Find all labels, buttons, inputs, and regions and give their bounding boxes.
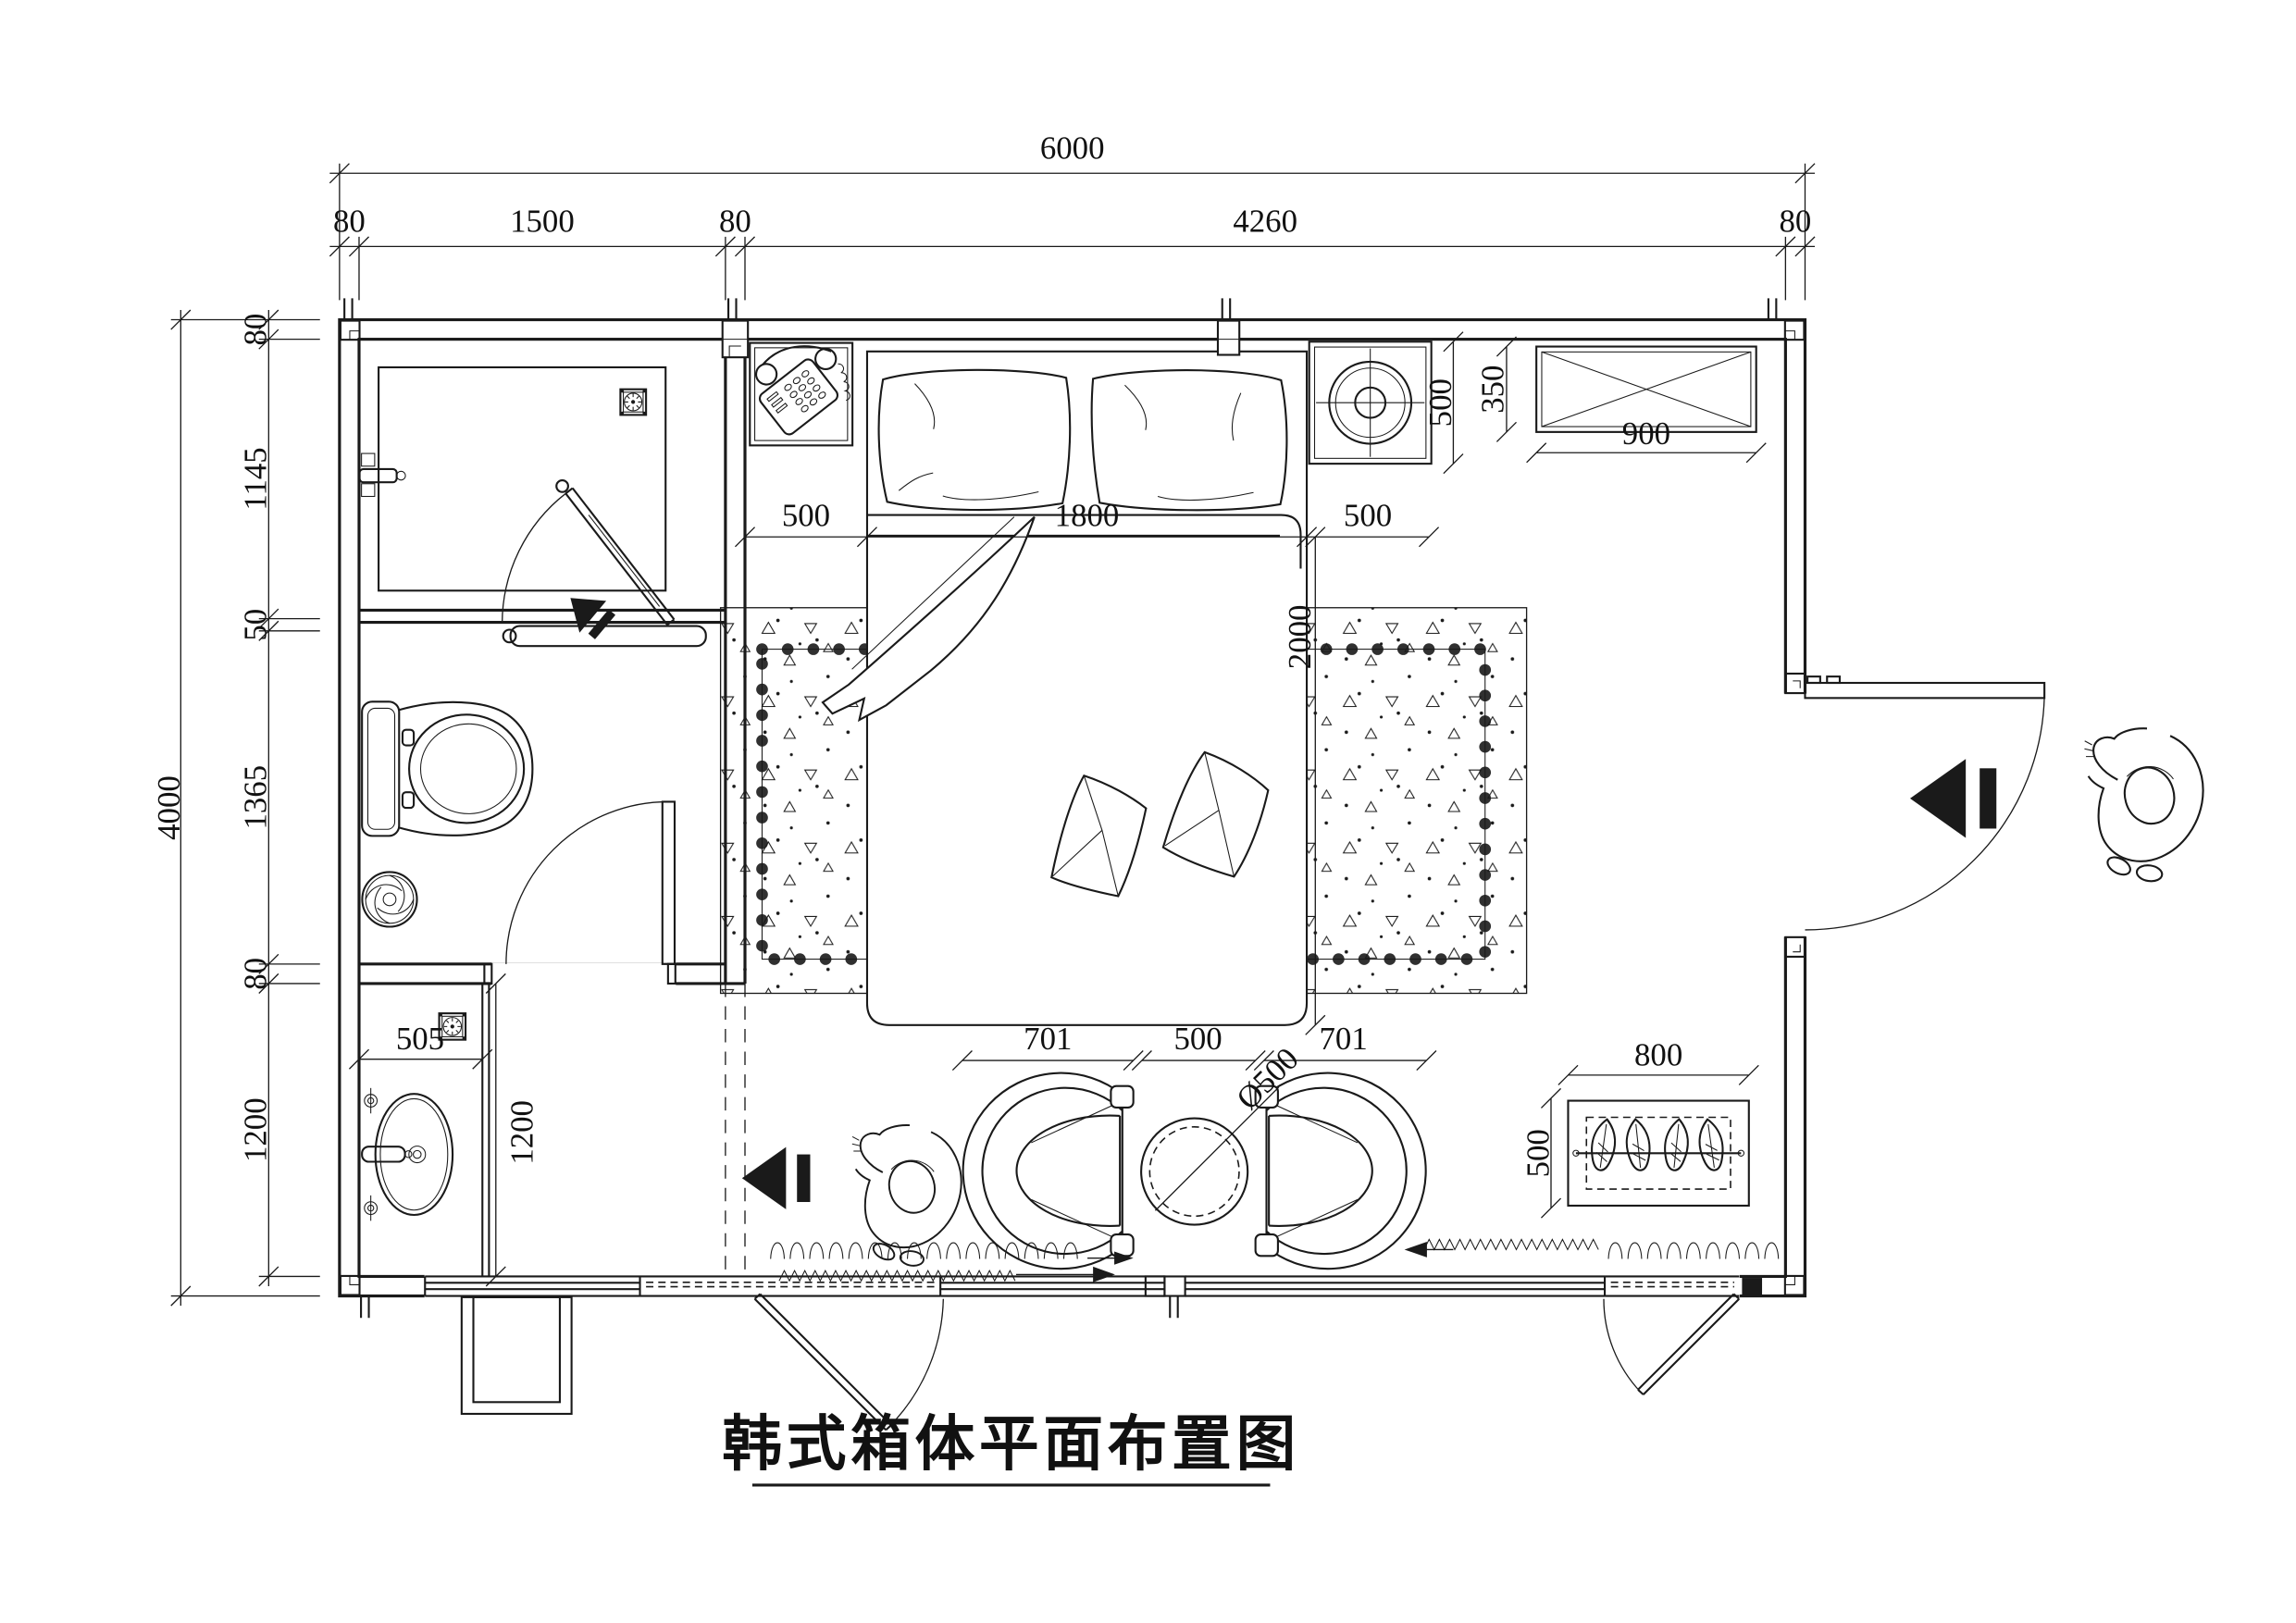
dim-label: 1200 (503, 1100, 540, 1165)
dim-label: 80 (719, 204, 751, 240)
dim-label: 900 (1622, 415, 1670, 452)
planter-box (1568, 1101, 1748, 1206)
dim-label: 6000 (1040, 130, 1105, 166)
shower-floor-drain-icon (620, 390, 646, 415)
dim-label: 2000 (1282, 605, 1318, 670)
dim-label: 505 (396, 1021, 444, 1057)
dim-label: 1800 (1055, 497, 1120, 533)
bedroom-direction-arrow (742, 1147, 811, 1209)
shower-tray (379, 367, 665, 590)
nightstand-left (743, 325, 863, 445)
person-figure-bedroom (852, 1125, 962, 1267)
dim-label: 80 (1780, 204, 1812, 240)
dim-label: 500 (1520, 1129, 1556, 1177)
person-figure-outside (2084, 728, 2203, 883)
towel-rail (503, 626, 706, 647)
dim-label: 4260 (1233, 204, 1297, 240)
dim-label: 701 (1320, 1021, 1368, 1057)
top-wall-post-interior (723, 298, 748, 357)
shower-mixer-bracket (360, 453, 406, 496)
dim-label: 4000 (151, 775, 187, 840)
toilet (362, 701, 532, 836)
dim-label: 50 (238, 609, 274, 641)
dim-label: 500 (782, 497, 830, 533)
double-bed (823, 352, 1307, 1025)
dim-label: 350 (1475, 365, 1511, 414)
exterior-step (462, 1297, 572, 1414)
shower-room (360, 367, 706, 646)
armchair-right (1256, 1073, 1426, 1270)
bed-pillow-left (879, 370, 1071, 510)
drawing-title: 韩式箱体平面布置图 (722, 1410, 1300, 1485)
dim-label: 80 (238, 314, 274, 346)
bed-pillow-right (1092, 370, 1287, 510)
nightstand-right (1309, 341, 1432, 464)
dim-label: 1365 (238, 765, 274, 830)
wash-basin (362, 1088, 453, 1220)
toilet-door (506, 801, 675, 963)
vanity-counter (482, 984, 489, 1277)
toilet-floor-drain-icon (362, 872, 416, 926)
floor-plan-drawing: 6000 80 1500 80 4260 80 4000 80 1145 50 … (0, 0, 2296, 1623)
dim-left-total: 4000 (151, 310, 320, 1306)
toilet-room (362, 701, 675, 964)
drawing-title-text: 韩式箱体平面布置图 (722, 1410, 1300, 1480)
dim-label: 80 (238, 958, 274, 990)
dim-left-chain: 80 1145 50 1365 80 1200 (238, 310, 320, 1286)
armchair-left (963, 1073, 1134, 1270)
shower-door (503, 480, 675, 643)
dim-label: 800 (1634, 1036, 1682, 1072)
main-entry-door (1785, 674, 2044, 957)
glass-door-leaf-right (1604, 1294, 1739, 1394)
dim-label: 500 (1422, 378, 1458, 427)
dim-label: 80 (333, 204, 366, 240)
dim-label: 500 (1173, 1021, 1222, 1057)
top-wall-post-mid (1218, 298, 1239, 354)
dim-top-chain: 80 1500 80 4260 80 (329, 204, 1815, 301)
dim-cabinet: 350 900 (1475, 337, 1767, 463)
dim-label: 1145 (238, 447, 274, 510)
dim-label: 500 (1344, 497, 1392, 533)
dim-label: 701 (1024, 1021, 1072, 1057)
dim-label: 1500 (510, 204, 575, 240)
entry-direction-arrow (1910, 759, 1996, 837)
dim-label: 1200 (238, 1097, 274, 1162)
curtain-right (1405, 1239, 1779, 1258)
